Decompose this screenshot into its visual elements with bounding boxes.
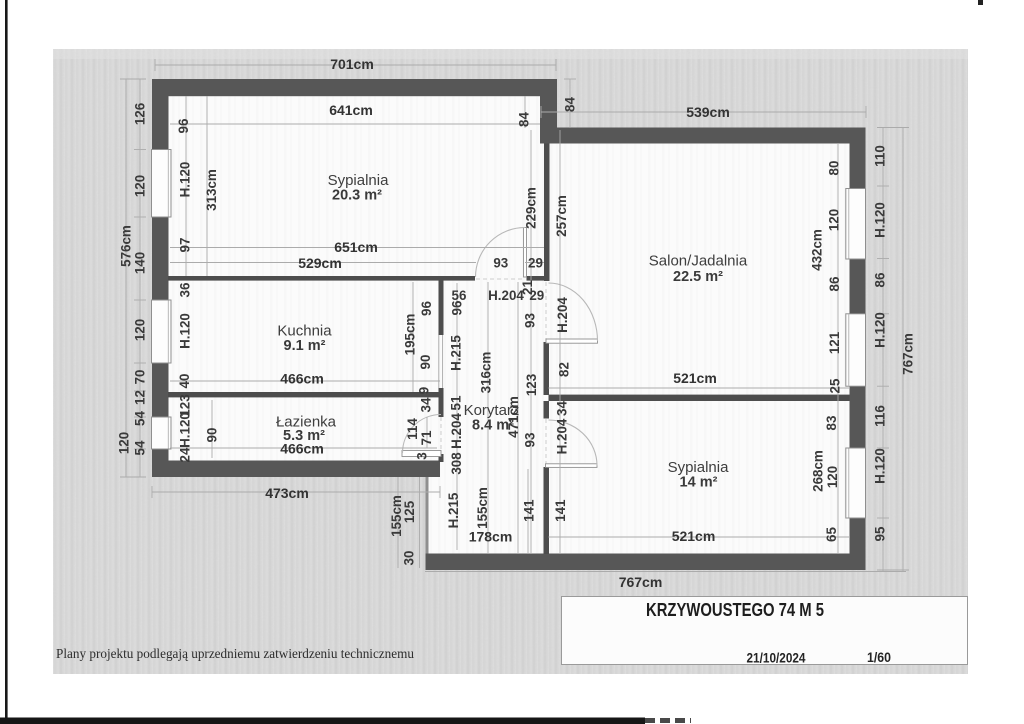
svg-text:20.3 m²: 20.3 m² [332, 188, 382, 204]
svg-text:576cm: 576cm [119, 225, 134, 267]
svg-text:90: 90 [418, 355, 433, 370]
svg-text:70: 70 [133, 370, 148, 385]
svg-text:641cm: 641cm [329, 102, 373, 118]
svg-text:123: 123 [524, 374, 539, 396]
svg-text:178cm: 178cm [469, 529, 513, 545]
svg-text:651cm: 651cm [334, 239, 378, 255]
svg-text:466cm: 466cm [280, 371, 324, 387]
svg-text:701cm: 701cm [330, 56, 374, 72]
svg-text:54: 54 [133, 440, 148, 455]
svg-text:95: 95 [873, 526, 888, 541]
svg-text:96: 96 [176, 119, 191, 134]
svg-text:126: 126 [133, 103, 148, 125]
svg-text:86: 86 [827, 277, 842, 292]
svg-text:H.204: H.204 [555, 297, 570, 333]
svg-text:97: 97 [178, 238, 193, 253]
svg-text:65: 65 [824, 527, 839, 542]
svg-text:521cm: 521cm [673, 370, 717, 386]
svg-text:96: 96 [450, 301, 465, 316]
svg-text:767cm: 767cm [901, 333, 916, 375]
svg-text:539cm: 539cm [686, 104, 730, 120]
svg-text:H.120: H.120 [873, 312, 888, 348]
svg-text:120: 120 [133, 175, 148, 197]
svg-text:82: 82 [557, 362, 572, 377]
svg-text:34: 34 [419, 397, 434, 412]
svg-text:21: 21 [520, 280, 535, 295]
svg-text:268cm: 268cm [811, 450, 826, 492]
svg-text:141: 141 [521, 499, 536, 522]
svg-text:257cm: 257cm [554, 195, 569, 237]
svg-text:521cm: 521cm [672, 528, 716, 544]
svg-text:110: 110 [873, 145, 888, 167]
svg-text:H.215: H.215 [446, 492, 461, 528]
svg-text:H.120: H.120 [178, 313, 193, 349]
svg-text:120: 120 [825, 466, 840, 488]
svg-text:H.120: H.120 [873, 202, 888, 238]
svg-text:9.1 m²: 9.1 m² [284, 338, 326, 354]
svg-text:120: 120 [133, 319, 148, 341]
svg-text:141: 141 [553, 499, 568, 522]
svg-text:1/60: 1/60 [867, 650, 891, 665]
svg-text:80: 80 [827, 161, 842, 176]
svg-text:84: 84 [517, 112, 532, 127]
svg-text:229cm: 229cm [524, 187, 539, 229]
svg-text:767cm: 767cm [619, 574, 663, 590]
svg-text:90: 90 [205, 428, 220, 443]
svg-text:H.120: H.120 [873, 448, 888, 484]
svg-text:9: 9 [417, 387, 432, 394]
svg-text:22.5 m²: 22.5 m² [673, 269, 723, 285]
svg-text:96: 96 [419, 301, 434, 316]
svg-text:12: 12 [133, 390, 148, 405]
svg-text:Salon/Jadalnia: Salon/Jadalnia [649, 253, 748, 270]
svg-text:471cm: 471cm [506, 396, 521, 438]
svg-text:3: 3 [415, 452, 430, 459]
svg-text:Sypialnia: Sypialnia [668, 459, 730, 476]
svg-text:Sypialnia: Sypialnia [328, 172, 390, 189]
svg-text:308: 308 [449, 452, 464, 475]
svg-text:313cm: 313cm [204, 169, 219, 211]
svg-text:125: 125 [402, 500, 417, 523]
svg-text:116: 116 [873, 405, 888, 427]
svg-text:195cm: 195cm [403, 314, 418, 356]
svg-text:25: 25 [828, 378, 843, 393]
svg-text:120: 120 [117, 432, 132, 454]
svg-text:H.120: H.120 [178, 412, 193, 448]
svg-text:29: 29 [528, 255, 543, 270]
svg-text:86: 86 [873, 273, 888, 288]
svg-text:155cm: 155cm [475, 487, 490, 529]
svg-text:Kuchnia: Kuchnia [277, 323, 332, 340]
svg-text:54: 54 [133, 411, 148, 426]
svg-text:466cm: 466cm [280, 441, 324, 457]
svg-text:H.204: H.204 [488, 288, 524, 303]
svg-text:24: 24 [178, 447, 193, 462]
svg-text:473cm: 473cm [265, 485, 309, 501]
svg-text:14 m²: 14 m² [680, 475, 718, 491]
svg-text:34: 34 [555, 401, 570, 416]
svg-text:71: 71 [419, 430, 434, 445]
svg-text:H.120: H.120 [178, 162, 193, 198]
svg-text:93: 93 [493, 256, 508, 271]
svg-text:93: 93 [523, 313, 538, 328]
svg-text:114: 114 [405, 418, 420, 440]
svg-text:H.204: H.204 [449, 413, 464, 449]
svg-text:121: 121 [827, 331, 842, 354]
svg-text:93: 93 [523, 433, 538, 448]
svg-text:84: 84 [563, 97, 578, 112]
svg-text:83: 83 [824, 416, 839, 431]
svg-text:120: 120 [827, 209, 842, 231]
svg-text:529cm: 529cm [298, 255, 342, 271]
svg-text:H.215: H.215 [449, 335, 464, 371]
svg-text:H.204: H.204 [555, 418, 570, 454]
svg-text:Plany projektu podlegają uprze: Plany projektu podlegają uprzedniemu zat… [56, 647, 414, 662]
svg-text:316cm: 316cm [479, 352, 494, 394]
svg-text:51: 51 [449, 395, 464, 410]
svg-text:432cm: 432cm [810, 229, 825, 271]
svg-text:40: 40 [177, 374, 192, 389]
svg-text:30: 30 [402, 551, 417, 566]
svg-text:KRZYWOUSTEGO 74 M 5: KRZYWOUSTEGO 74 M 5 [646, 600, 824, 620]
svg-text:36: 36 [178, 283, 193, 298]
svg-text:140: 140 [133, 252, 148, 274]
svg-text:21/10/2024: 21/10/2024 [747, 651, 806, 666]
